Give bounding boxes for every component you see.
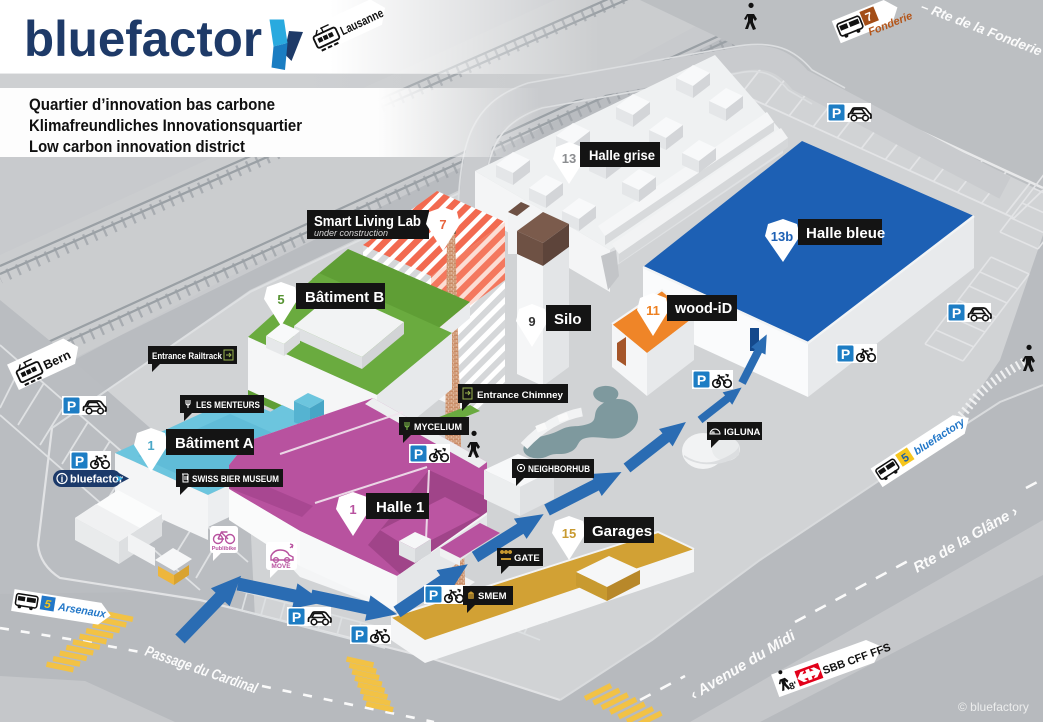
svg-text:under construction: under construction bbox=[314, 228, 388, 238]
svg-text:Low carbon innovation district: Low carbon innovation district bbox=[29, 137, 245, 156]
svg-text:Garages: Garages bbox=[592, 523, 652, 540]
svg-text:Halle 1: Halle 1 bbox=[376, 499, 424, 516]
svg-text:1: 1 bbox=[349, 502, 356, 517]
svg-text:bluefactor: bluefactor bbox=[24, 11, 262, 67]
svg-text:15: 15 bbox=[562, 526, 576, 541]
svg-text:Halle grise: Halle grise bbox=[589, 147, 655, 163]
svg-text:Klimafreundliches Innovationsq: Klimafreundliches Innovationsquartier bbox=[29, 116, 302, 135]
svg-text:1: 1 bbox=[147, 438, 154, 453]
svg-text:© bluefactory: © bluefactory bbox=[958, 700, 1029, 714]
svg-text:wood-iD: wood-iD bbox=[674, 301, 732, 317]
svg-text:Halle bleue: Halle bleue bbox=[806, 225, 885, 242]
svg-text:IGLUNA: IGLUNA bbox=[724, 427, 761, 438]
svg-text:7: 7 bbox=[439, 217, 446, 232]
svg-text:i: i bbox=[61, 474, 64, 484]
svg-text:Entrance Railtrack: Entrance Railtrack bbox=[152, 351, 223, 362]
svg-text:NEIGHBORHUB: NEIGHBORHUB bbox=[528, 464, 590, 475]
svg-text:LES MENTEURS: LES MENTEURS bbox=[196, 400, 260, 411]
svg-text:MOVE: MOVE bbox=[271, 563, 291, 570]
svg-text:5: 5 bbox=[277, 292, 284, 307]
svg-text:13: 13 bbox=[562, 151, 576, 166]
svg-text:SWISS BIER MUSEUM: SWISS BIER MUSEUM bbox=[192, 474, 279, 485]
svg-text:Publibike: Publibike bbox=[212, 546, 236, 552]
svg-text:GATE: GATE bbox=[514, 553, 540, 564]
svg-text:Bâtiment B: Bâtiment B bbox=[305, 289, 384, 306]
svg-text:Entrance Chimney: Entrance Chimney bbox=[477, 390, 564, 401]
svg-text:MYCELIUM: MYCELIUM bbox=[414, 422, 462, 433]
svg-text:SMEM: SMEM bbox=[478, 591, 507, 602]
svg-text:Silo: Silo bbox=[554, 311, 582, 328]
svg-text:13b: 13b bbox=[771, 229, 793, 244]
svg-text:11: 11 bbox=[646, 303, 660, 318]
svg-text:bluefactor: bluefactor bbox=[70, 474, 124, 486]
svg-text:9: 9 bbox=[528, 314, 535, 329]
svg-text:Quartier d’innovation bas carb: Quartier d’innovation bas carbone bbox=[29, 95, 275, 114]
svg-text:Bâtiment A: Bâtiment A bbox=[175, 435, 254, 452]
